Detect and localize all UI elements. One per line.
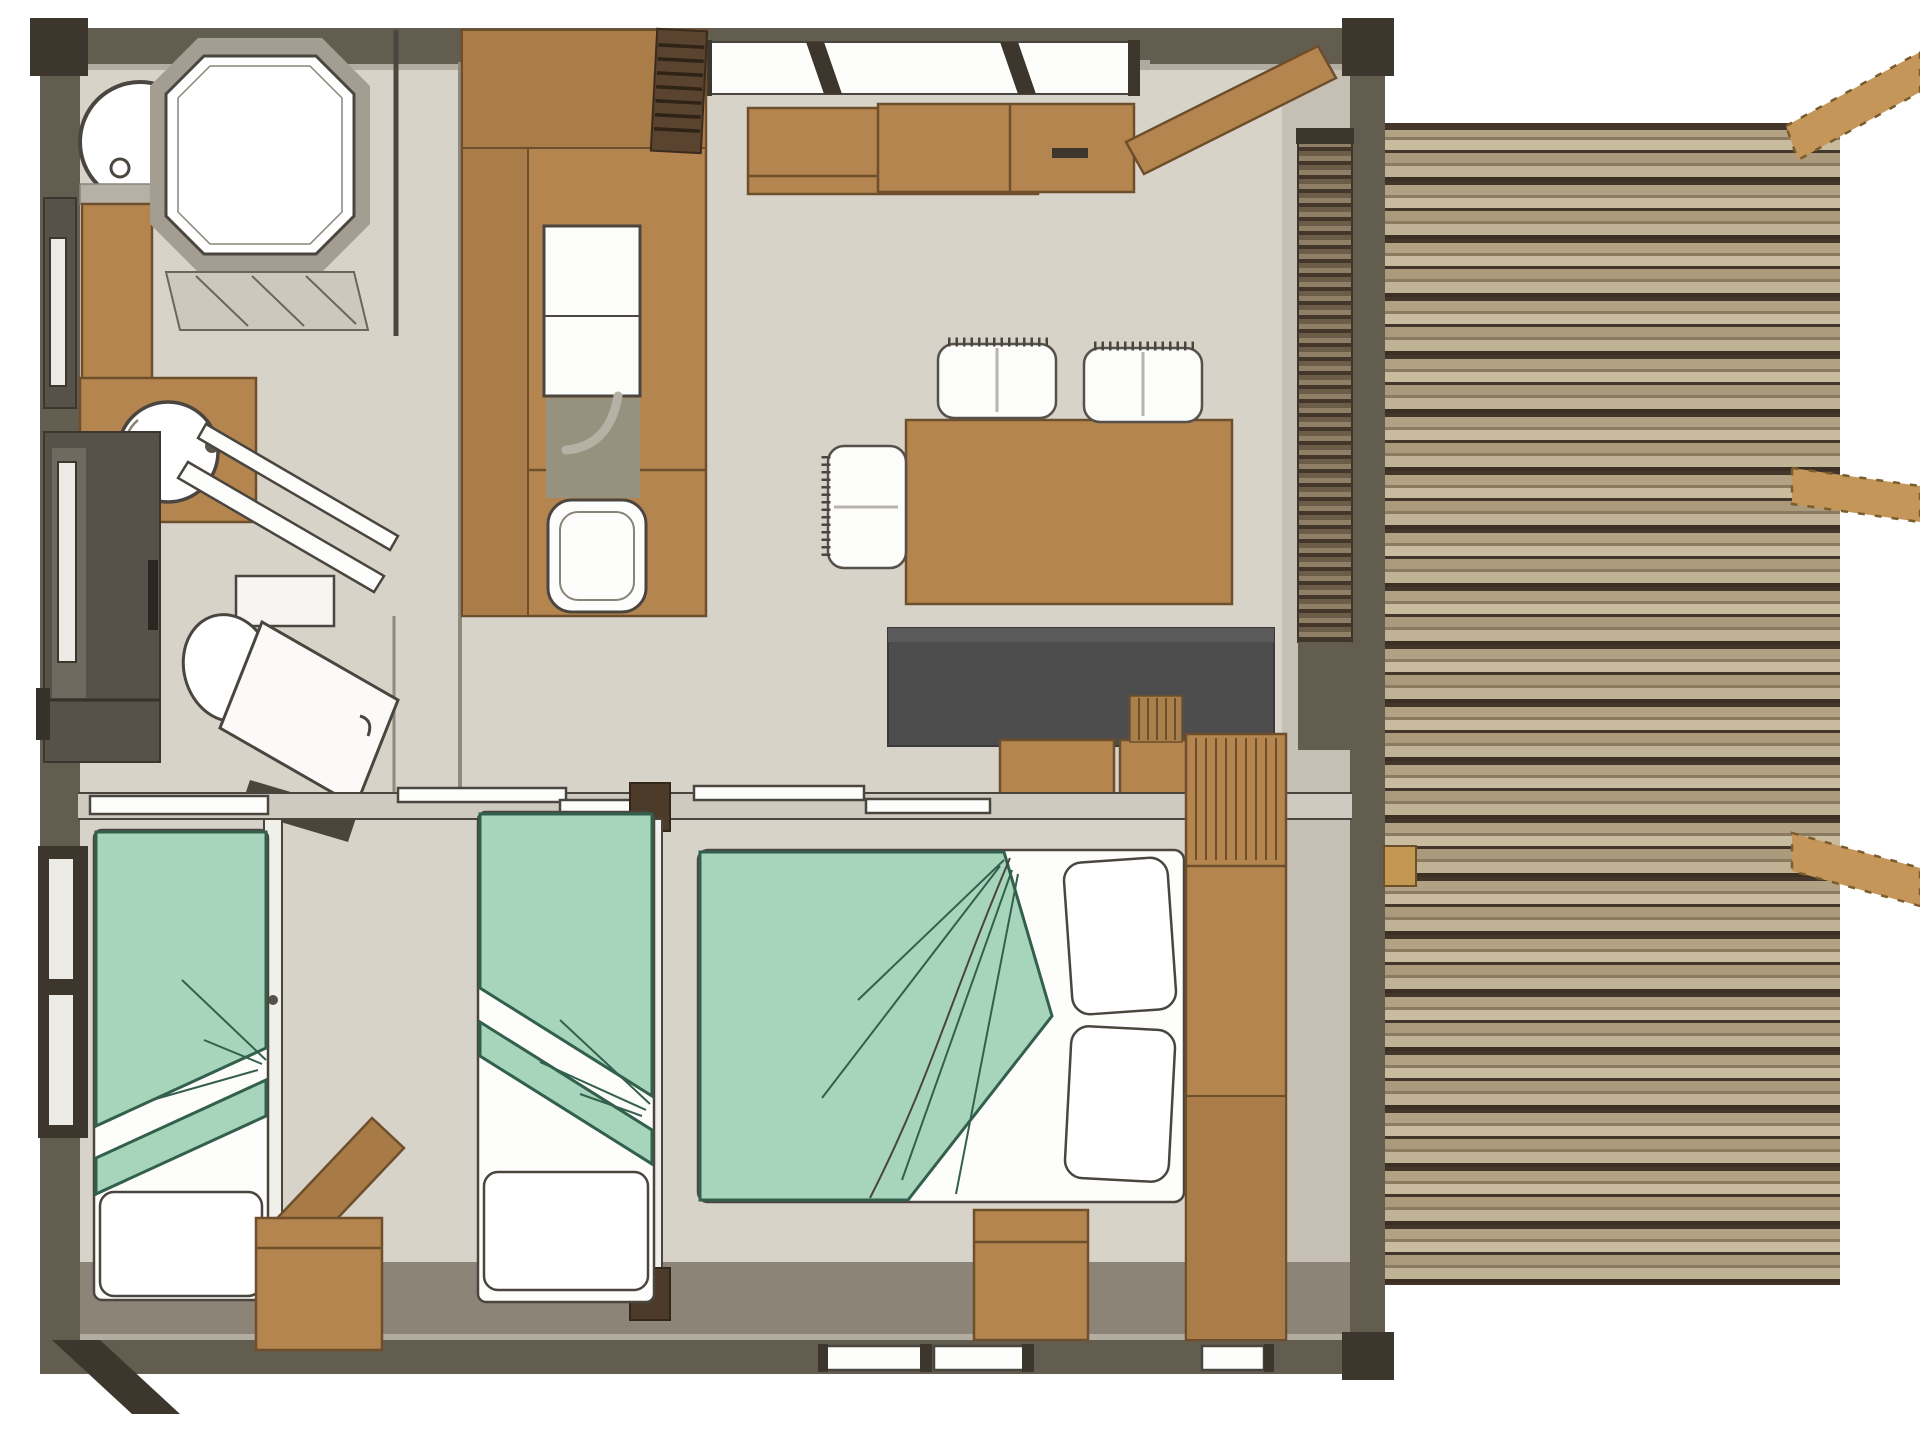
deck-door-handle: [1384, 846, 1416, 886]
dining-table: [906, 420, 1232, 604]
bottom-window-cap-2: [1264, 1344, 1274, 1372]
sofa-back-edge: [888, 628, 1274, 642]
sofa: [888, 628, 1274, 746]
bottom-window-divider-1: [920, 1344, 932, 1372]
corner-post-bottom-right: [1342, 1332, 1394, 1380]
cooktop: [548, 500, 646, 612]
left-window-pane-1: [48, 858, 74, 980]
canvas-roll-top-cap: [1296, 128, 1354, 144]
shower-tray: [166, 56, 354, 254]
entry-cabinet-detail: [1052, 148, 1088, 158]
bed1-pillow: [100, 1192, 262, 1296]
shower-cabin: [150, 38, 370, 330]
bed3-pillow-1: [1063, 857, 1177, 1016]
wardrobe-mirror: [58, 462, 76, 662]
rolled-canvas-strip: [1298, 142, 1352, 642]
kitchen-sink: [544, 226, 640, 396]
pergola-beam-top: [1786, 52, 1920, 160]
top-window-band: [690, 40, 1150, 96]
door-leaf-bedroom-1: [90, 796, 268, 814]
deck-top-edge: [1383, 123, 1840, 130]
bottom-window-cap-1: [818, 1344, 828, 1372]
door-leaf-bedroom-3a: [694, 786, 864, 800]
bottom-window-3: [1202, 1346, 1264, 1370]
wardrobe-lower: [1186, 1096, 1286, 1340]
hall-wardrobe: [36, 432, 160, 762]
louver-block: [1130, 696, 1182, 742]
window-glazing: [708, 42, 1136, 94]
window-cap-right: [1128, 40, 1140, 96]
bed2-pillow: [484, 1172, 648, 1290]
heater-unit: [651, 29, 707, 153]
floor-plan-image: [0, 0, 1920, 1440]
bedroom3-wardrobe: [1186, 734, 1286, 1340]
wall-handle: [36, 688, 50, 740]
lodge-unit: [30, 18, 1416, 1414]
right-wall: [1350, 28, 1385, 1374]
shower-entry: [166, 272, 368, 330]
deck-terrace: [1383, 123, 1840, 1285]
door-leaf-bedroom-3b: [866, 799, 990, 813]
bed3-pillow-2: [1064, 1025, 1176, 1182]
dining-chair-3: [826, 446, 906, 568]
bedroom-single-left: [94, 830, 268, 1300]
right-wall-canvas: [1296, 128, 1354, 750]
sideboard-1: [1000, 740, 1114, 796]
left-bottom-windows: [38, 846, 88, 1138]
canvas-roll-bottom-block: [1298, 642, 1352, 750]
left-window-top: [50, 238, 66, 386]
deck-planks: [1383, 123, 1840, 1285]
bottom-window-divider-2: [1022, 1344, 1034, 1372]
corner-post-top-left: [30, 18, 88, 76]
floor-plan-page: [0, 0, 1920, 1440]
toilet-tank: [236, 576, 334, 626]
nightstand-box: [256, 1218, 382, 1350]
entry-cabinet: [878, 104, 1134, 192]
bottom-wall: [40, 1340, 1385, 1374]
kitchen-left-column: [462, 148, 528, 616]
wardrobe-handle: [148, 560, 158, 630]
bottom-window-2: [934, 1346, 1024, 1370]
dining-chair-1: [938, 342, 1056, 418]
kitchen-gray-zone: [546, 398, 640, 498]
dining-chair-2: [1084, 346, 1202, 422]
corner-post-top-right: [1342, 18, 1394, 76]
foot-cabinet: [974, 1210, 1088, 1340]
left-window-pane-2: [48, 994, 74, 1126]
door-leaf-bedroom-2a: [398, 788, 566, 802]
partition-hinge-1: [268, 995, 278, 1005]
bottom-window-1: [826, 1346, 922, 1370]
